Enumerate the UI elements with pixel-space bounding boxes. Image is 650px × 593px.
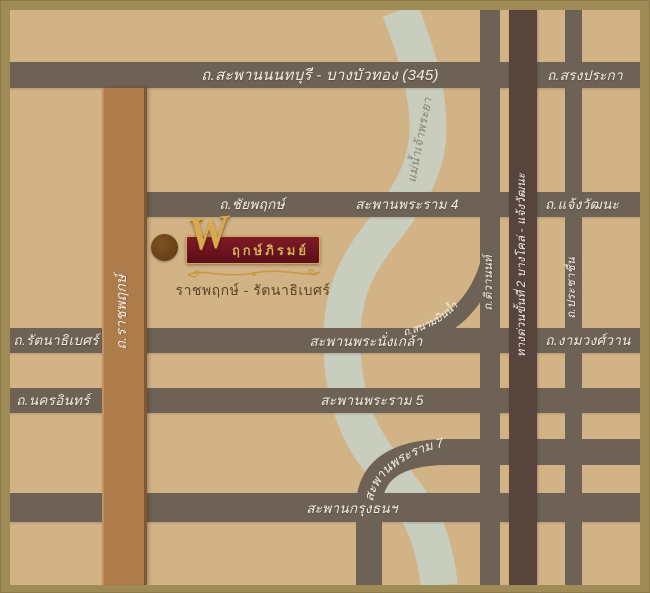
krungthon-bridge-label: สะพานกรุงธนฯ [306,497,398,519]
logo-monogram: W [186,208,231,258]
project-logo: ฤกษ์ภิรมย์ W ราชพฤกษ์ - รัตนาธิเบศร์ [140,214,370,309]
ratchaphruek-label: ถ.ราชพฤกษ์ [111,274,133,349]
logo-subtitle: ราชพฤกษ์ - รัตนาธิเบศร์ [176,280,331,302]
location-marker-dot [151,234,178,261]
logo-name-text: ฤกษ์ภิรมย์ [232,240,309,261]
ngamwongwan-label: ถ.งามวงศ์วาน [545,329,630,351]
road-rama7-arc [369,452,640,585]
map-screenshot: สะพานพระราม 7 ถ.สนามบินน้ำ ถ.สะพานนนทบุร… [0,0,650,593]
nangklao-bridge-label: สะพานพระนั่งเกล้า [309,330,422,352]
nakhon-in-label: ถ.นครอินทร์ [16,389,90,411]
expressway-label: ทางด่วนขั้นที่ 2 บางโคล่ - แจ้งวัฒนะ [513,173,531,357]
chaiyaphruek-label: ถ.ชัยพฤกษ์ [219,193,285,215]
rama5-bridge-label: สะพานพระราม 5 [320,389,424,411]
tiwanon-label: ถ.ติวานนท์ [480,255,498,310]
chaengwattana-label: ถ.แจ้งวัฒนะ [545,193,619,215]
prachachuen-label: ถ.ประชาชื่น [563,257,581,319]
rama4-bridge-label: สะพานพระราม 4 [355,193,459,215]
rattanathibet-label: ถ.รัตนาธิเบศร์ [13,329,98,351]
road-345-label: ถ.สะพานนนทบุรี - บางบัวทอง (345) [201,63,439,87]
song-praka-label: ถ.สรงประกา [547,64,623,86]
